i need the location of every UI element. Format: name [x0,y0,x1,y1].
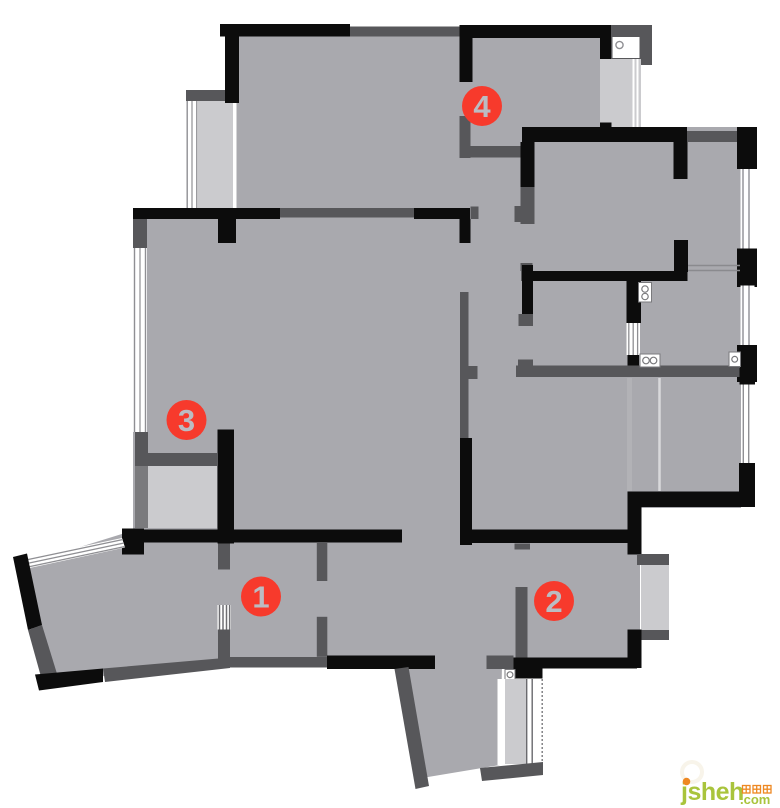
svg-text:1: 1 [252,580,269,615]
svg-text:2: 2 [545,584,562,619]
svg-text:4: 4 [473,89,491,124]
svg-text:3: 3 [178,403,195,438]
svg-text:.com: .com [740,792,770,807]
